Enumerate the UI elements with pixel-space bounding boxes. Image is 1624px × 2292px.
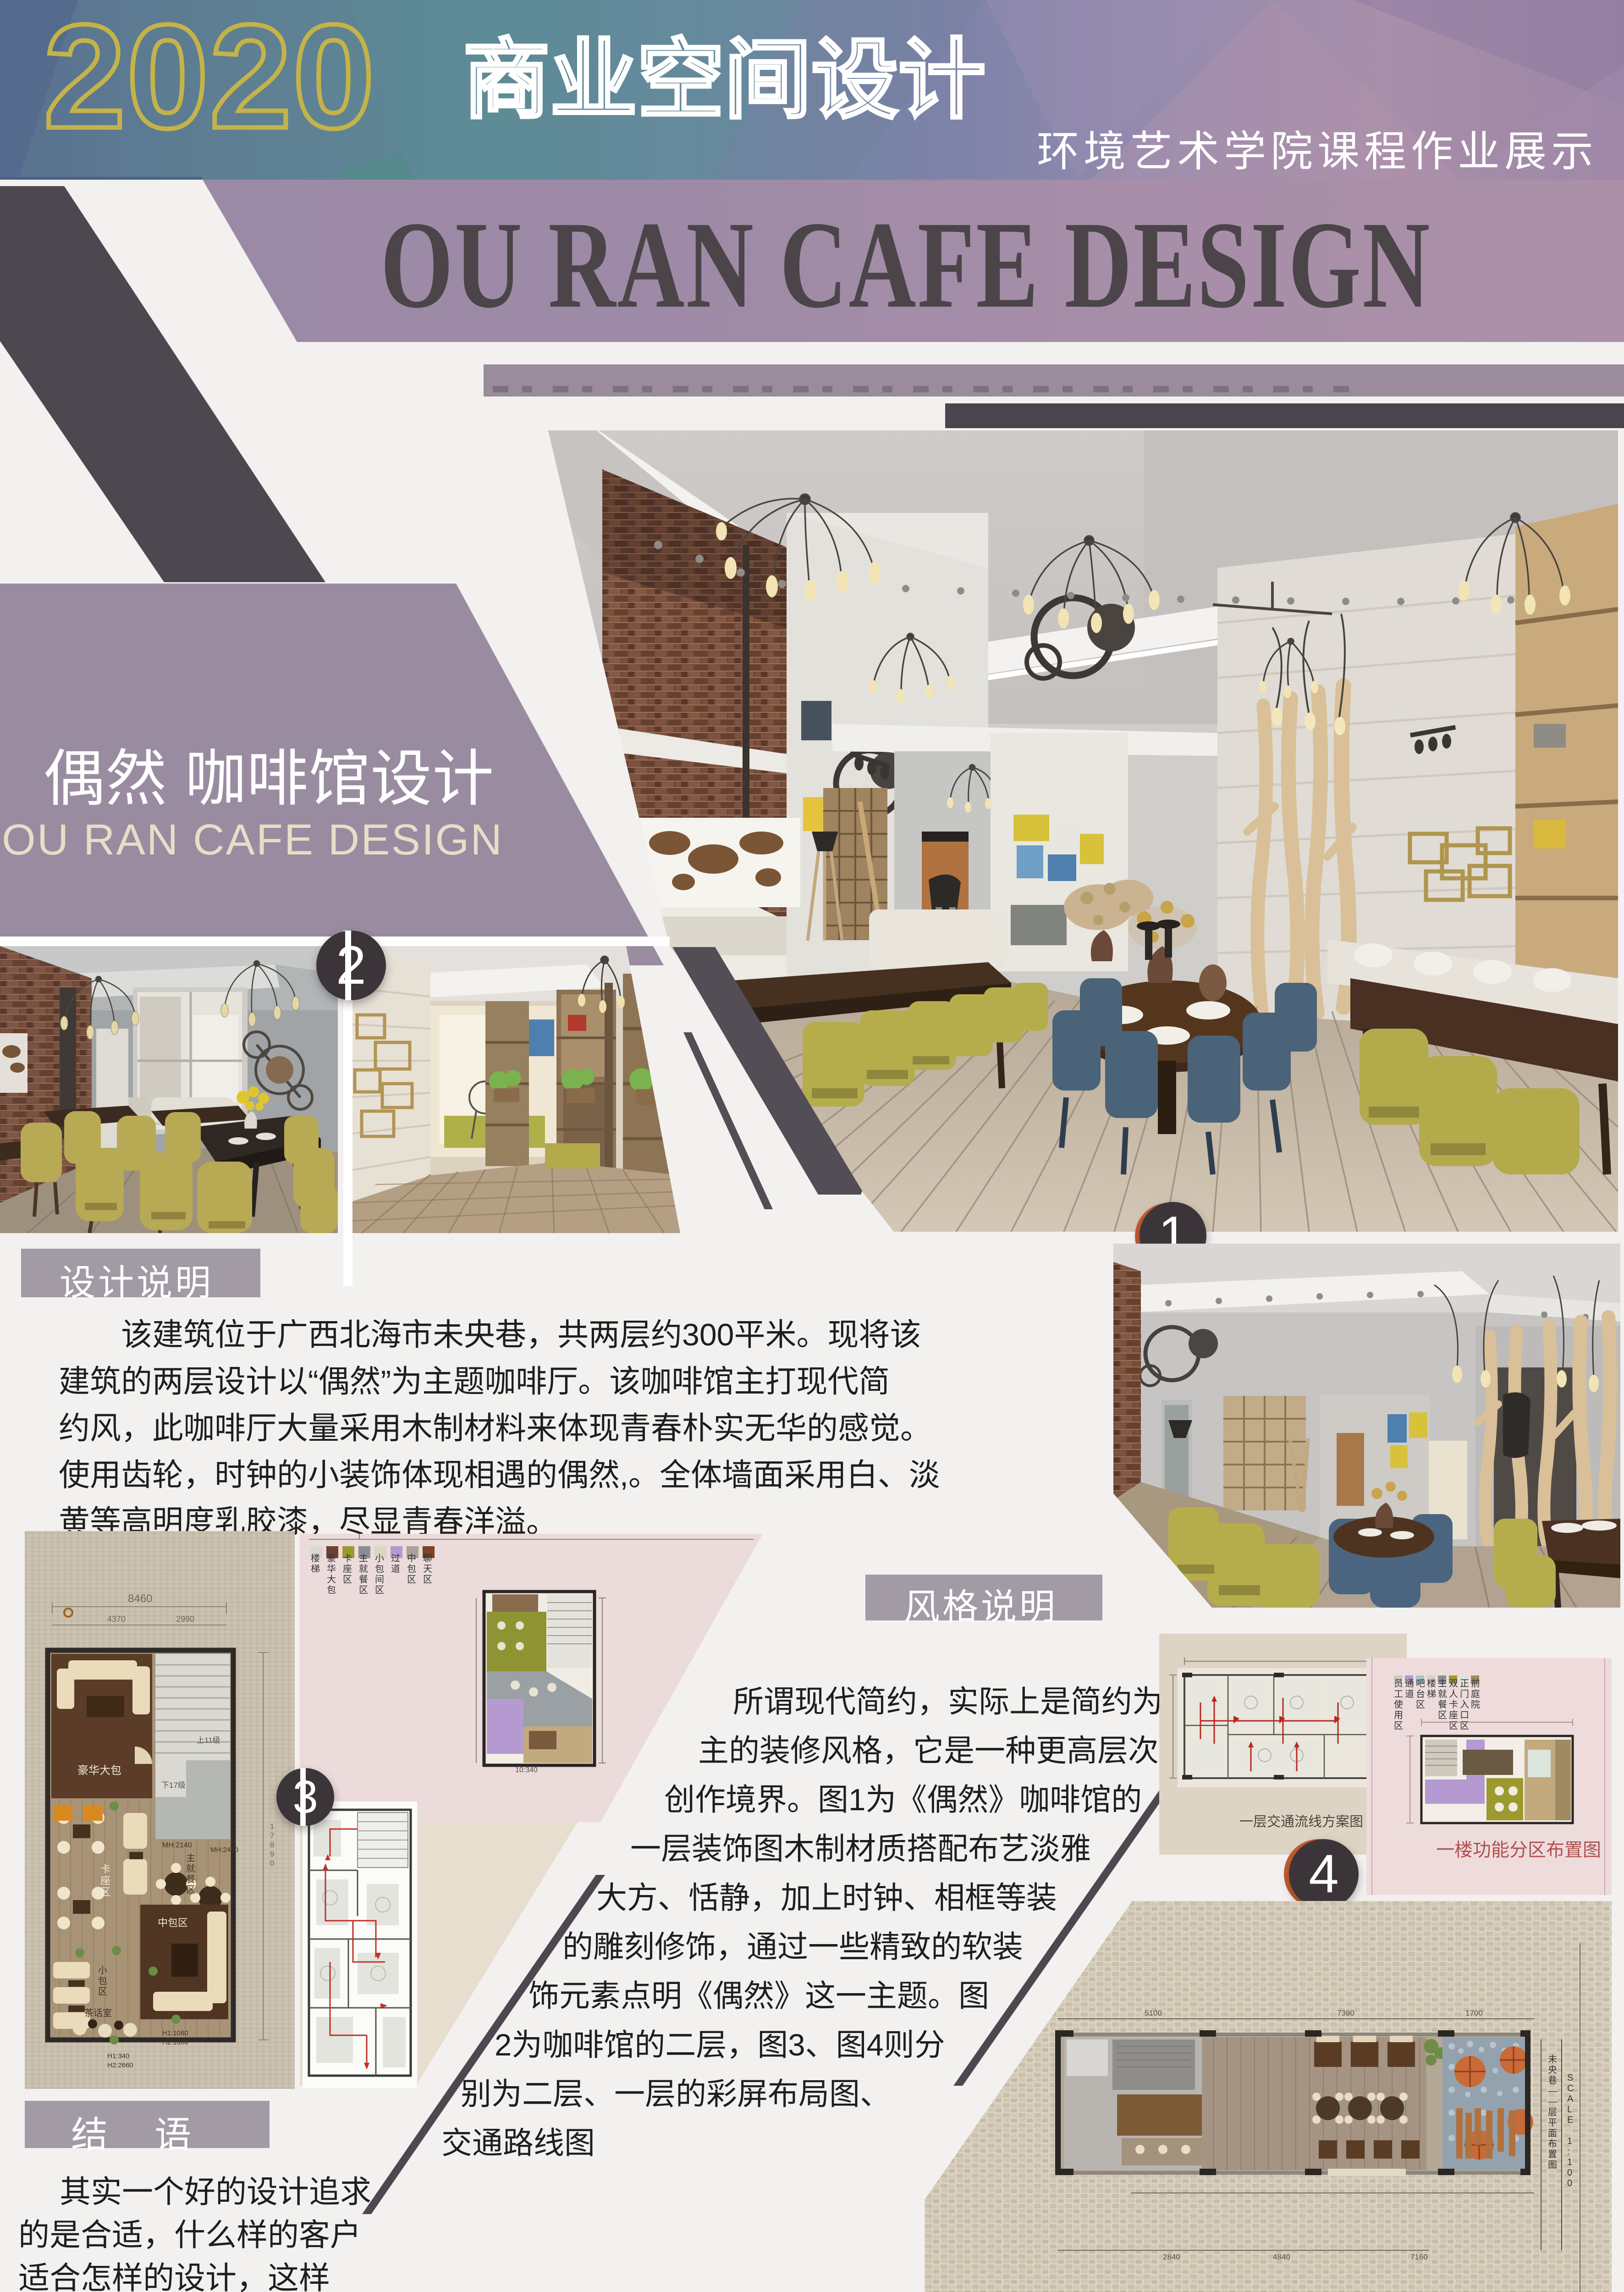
svg-text:卡座区: 卡座区 xyxy=(343,1553,352,1585)
svg-text:2990: 2990 xyxy=(176,1614,194,1624)
svg-text:一层交通流线方案图: 一层交通流线方案图 xyxy=(1239,1814,1363,1829)
svg-text:MH:2450: MH:2450 xyxy=(210,1846,238,1854)
svg-text:豪华大包: 豪华大包 xyxy=(327,1553,336,1595)
svg-text:聊天区: 聊天区 xyxy=(423,1553,432,1585)
svg-text:4370: 4370 xyxy=(107,1614,126,1624)
svg-text:楼梯: 楼梯 xyxy=(311,1553,320,1574)
svg-text:正门入口区: 正门入口区 xyxy=(1460,1679,1469,1731)
svg-text:中包区: 中包区 xyxy=(158,1917,188,1928)
svg-text:主就餐区: 主就餐区 xyxy=(359,1553,368,1595)
svg-text:H2:1660: H2:1660 xyxy=(162,2039,188,2046)
svg-text:2020: 2020 xyxy=(44,0,375,159)
svg-text:MH:2140: MH:2140 xyxy=(162,1841,192,1849)
svg-text:8460: 8460 xyxy=(128,1592,152,1605)
svg-text:员工使用区: 员工使用区 xyxy=(1394,1679,1403,1731)
svg-text:上11级: 上11级 xyxy=(197,1736,220,1745)
svg-text:10:340: 10:340 xyxy=(515,1766,538,1774)
svg-text:2840: 2840 xyxy=(1163,2253,1180,2261)
svg-text:豪华大包: 豪华大包 xyxy=(77,1764,121,1777)
svg-text:商业空间设计: 商业空间设计 xyxy=(463,32,985,129)
svg-text:17890: 17890 xyxy=(270,1822,274,1868)
svg-text:H1:340: H1:340 xyxy=(107,2052,129,2060)
svg-text:茶话室: 茶话室 xyxy=(84,2008,112,2018)
svg-text:双人卡座区: 双人卡座区 xyxy=(1449,1679,1458,1731)
svg-text:H1:1080: H1:1080 xyxy=(162,2029,188,2037)
svg-text:小包间区: 小包间区 xyxy=(375,1553,384,1595)
svg-text:卡座区: 卡座区 xyxy=(100,1863,110,1898)
svg-text:小包区: 小包区 xyxy=(98,1965,107,1997)
svg-text:7390: 7390 xyxy=(1337,2009,1354,2017)
svg-text:下17级: 下17级 xyxy=(161,1781,186,1790)
svg-text:7160: 7160 xyxy=(1410,2253,1428,2261)
svg-text:1700: 1700 xyxy=(1465,2009,1483,2017)
svg-text:前庭院: 前庭院 xyxy=(1471,1678,1480,1710)
svg-text:5100: 5100 xyxy=(1145,2009,1162,2017)
svg-text:H2:2660: H2:2660 xyxy=(107,2061,133,2069)
svg-text:吧台区: 吧台区 xyxy=(1416,1679,1425,1710)
svg-text:未央巷——层平面布置图: 未央巷——层平面布置图 xyxy=(1548,2054,1557,2170)
svg-text:4840: 4840 xyxy=(1273,2253,1290,2261)
svg-text:一楼功能分区布置图: 一楼功能分区布置图 xyxy=(1436,1840,1601,1860)
svg-text:中包区: 中包区 xyxy=(407,1553,416,1585)
svg-text:过道: 过道 xyxy=(391,1553,400,1574)
